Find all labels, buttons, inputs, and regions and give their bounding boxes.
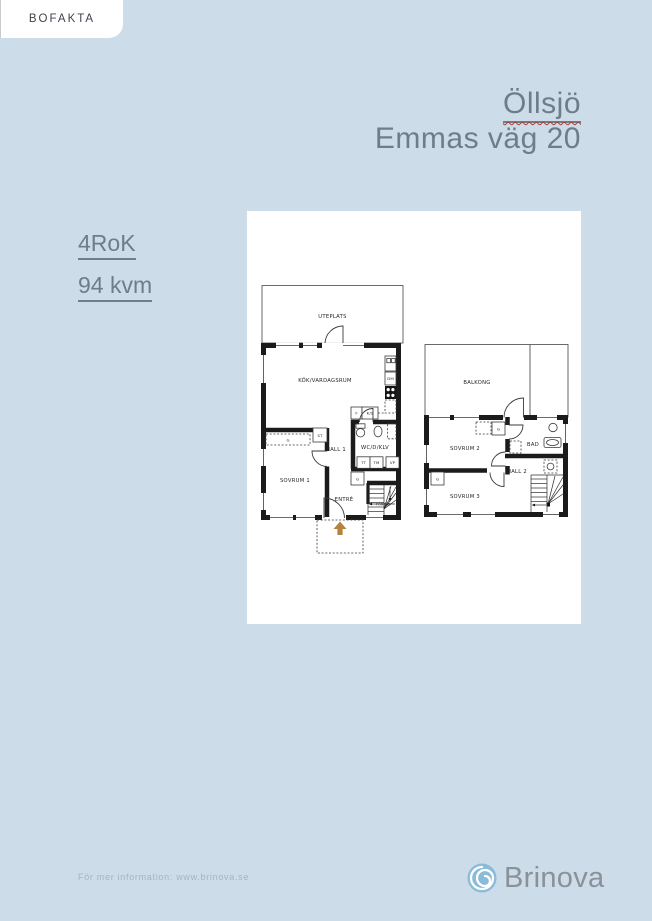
label-wardrobe-3: G [497, 427, 500, 432]
label-hall2: HALL 2 [507, 469, 527, 475]
entrance-porch [317, 520, 363, 553]
label-wardrobe-1: G [286, 438, 289, 443]
title-area: Öllsjö [503, 87, 581, 123]
brinova-wordmark: Brinova [504, 862, 604, 895]
label-hall1: HALL 1 [326, 447, 346, 453]
label-forrad: FÖRRÅD [376, 502, 391, 507]
footer-info: För mer information: www.brinova.se [78, 872, 249, 882]
facts-block: 4RoK 94 kvm [78, 230, 152, 314]
label-wardrobe-2: G [356, 477, 359, 482]
entry-arrow-icon [334, 522, 347, 536]
label-sovrum3: SOVRUM 3 [450, 494, 480, 500]
label-bad: BAD [527, 442, 539, 448]
page-title: Öllsjö Emmas väg 20 [375, 86, 581, 156]
bofakta-tab-label: BOFAKTA [29, 13, 95, 25]
label-kok: KÖK/VARDAGSRUM [298, 377, 351, 384]
label-uteplats: UTEPLATS [318, 314, 346, 320]
fact-rooms-row: 4RoK [78, 230, 152, 257]
bofakta-page: BOFAKTA Öllsjö Emmas väg 20 4RoK 94 kvm [0, 0, 652, 921]
title-address: Emmas väg 20 [375, 121, 581, 156]
label-freezer: K/S [367, 411, 374, 416]
label-sovrum1: SOVRUM 1 [280, 478, 310, 484]
floorplan-panel: UTEPLATS KÖK/VARDAGSRUM SOVRUM 1 HALL 1 … [247, 211, 581, 624]
label-heatpump: VP [390, 460, 396, 465]
label-balkong: BALKONG [463, 380, 490, 386]
label-wardrobe-4: G [436, 477, 439, 482]
label-dishwasher: DM [387, 376, 394, 381]
label-dryer: TT [360, 460, 366, 465]
fact-size: 94 kvm [78, 272, 152, 302]
label-entre: ENTRÉ [335, 495, 354, 503]
bofakta-tab: BOFAKTA [0, 0, 123, 38]
label-cleaning-closet: ST [317, 433, 323, 438]
fact-size-row: 94 kvm [78, 272, 152, 299]
label-sovrum2: SOVRUM 2 [450, 446, 480, 452]
brinova-logo: Brinova [464, 860, 604, 896]
title-area-row: Öllsjö [375, 86, 581, 121]
brinova-swirl-icon [464, 860, 500, 896]
fact-rooms: 4RoK [78, 230, 136, 260]
floorplan-drawing: UTEPLATS KÖK/VARDAGSRUM SOVRUM 1 HALL 1 … [247, 211, 581, 624]
label-washer: TM [373, 460, 380, 465]
label-wc: WC/D/KLV [361, 445, 389, 451]
